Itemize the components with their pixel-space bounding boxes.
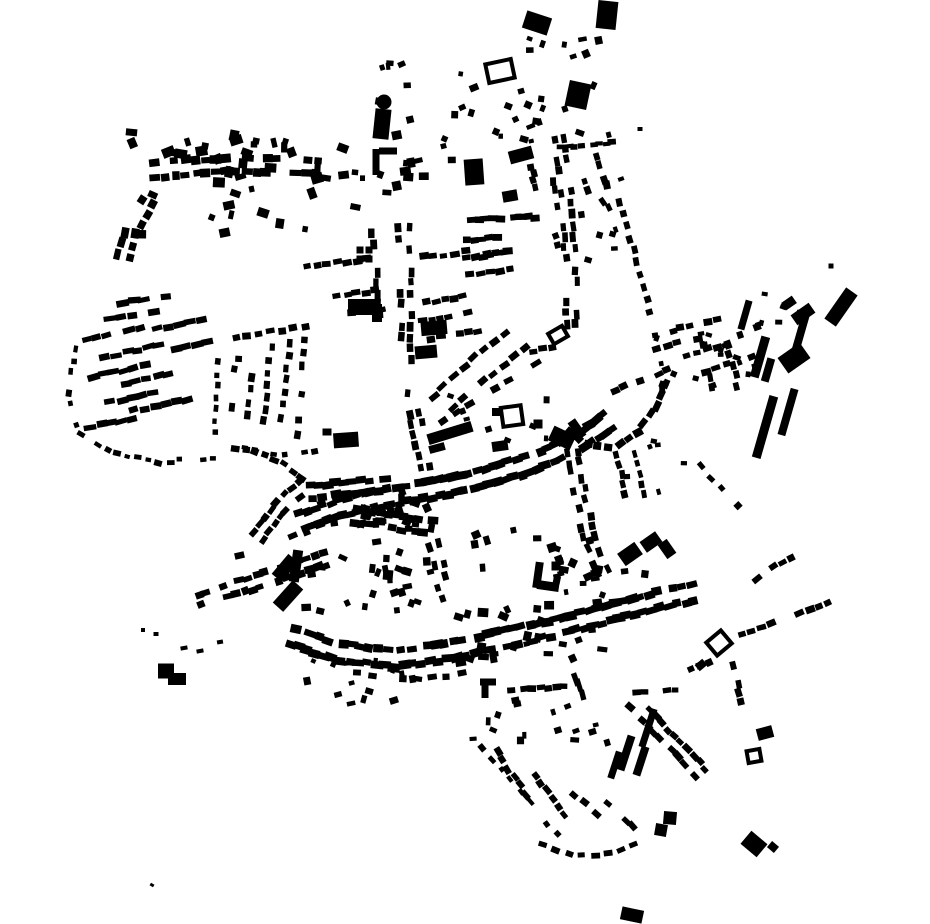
building-footprint — [510, 527, 517, 534]
building-footprint — [264, 163, 276, 173]
building-footprint — [244, 410, 251, 419]
building-footprint — [417, 528, 428, 537]
building-footprint — [369, 564, 376, 574]
building-footprint — [230, 445, 239, 452]
building-footprint — [439, 639, 449, 649]
building-footprint — [330, 520, 338, 527]
building-footprint — [275, 218, 285, 229]
building-footprint — [280, 400, 286, 407]
building-footprint — [478, 653, 489, 660]
map-background — [0, 0, 930, 924]
building-footprint — [353, 669, 361, 675]
building-footprint — [262, 405, 269, 414]
building-footprint — [190, 155, 200, 165]
building-footprint — [265, 370, 271, 377]
building-footprint — [554, 202, 560, 210]
building-footprint — [458, 71, 463, 76]
building-footprint — [397, 289, 404, 298]
building-footprint — [568, 199, 574, 207]
building-footprint — [366, 308, 376, 314]
building-footprint — [507, 687, 515, 693]
building-footprint — [394, 223, 401, 232]
building-footprint — [352, 169, 359, 175]
building-footprint — [544, 651, 553, 656]
building-footprint — [229, 403, 236, 412]
building-footprint — [295, 416, 302, 423]
building-footprint — [451, 111, 458, 119]
building-footprint — [317, 493, 327, 501]
building-footprint — [676, 323, 685, 331]
building-footprint — [333, 432, 359, 449]
building-footprint — [346, 478, 357, 485]
building-footprint — [557, 145, 566, 150]
building-footprint — [395, 235, 402, 243]
building-footprint — [154, 632, 159, 636]
building-footprint — [496, 215, 506, 222]
building-footprint — [213, 405, 218, 412]
building-footprint — [595, 141, 603, 145]
building-footprint — [360, 175, 365, 181]
building-footprint — [403, 82, 411, 88]
building-footprint — [134, 454, 142, 460]
building-footprint — [248, 385, 253, 392]
building-footprint — [442, 673, 449, 680]
building-footprint — [370, 286, 379, 293]
building-footprint — [365, 478, 374, 485]
building-footprint — [373, 487, 383, 495]
building-footprint — [530, 215, 540, 222]
building-footprint — [745, 371, 750, 377]
building-footprint — [134, 230, 146, 239]
building-footprint — [456, 330, 464, 337]
building-footprint — [382, 189, 391, 195]
building-footprint — [480, 564, 486, 572]
building-footprint — [476, 642, 486, 653]
building-footprint — [409, 675, 417, 684]
building-footprint — [550, 177, 556, 186]
building-footprint — [68, 368, 73, 375]
building-footprint — [322, 261, 331, 268]
building-footprint — [575, 448, 582, 457]
building-footprint — [313, 262, 321, 269]
building-footprint — [368, 228, 375, 238]
building-footprint — [578, 211, 585, 218]
building-footprint — [638, 127, 643, 131]
building-footprint — [409, 311, 416, 319]
building-footprint — [414, 345, 437, 360]
building-footprint — [195, 145, 208, 157]
building-footprint — [406, 245, 412, 254]
building-footprint — [399, 670, 405, 677]
building-footprint — [562, 308, 569, 315]
building-footprint — [141, 628, 145, 632]
building-footprint — [566, 460, 572, 468]
building-footprint — [405, 526, 413, 532]
building-footprint — [298, 391, 305, 398]
building-footprint — [592, 598, 602, 607]
building-footprint — [383, 646, 394, 653]
building-footprint — [588, 624, 596, 633]
building-footprint — [168, 673, 186, 685]
building-footprint — [200, 457, 207, 462]
building-footprint — [373, 149, 380, 175]
building-footprint — [580, 581, 587, 586]
building-footprint — [624, 474, 630, 479]
building-footprint — [263, 154, 273, 162]
building-footprint — [594, 36, 603, 45]
building-footprint — [323, 429, 332, 436]
building-footprint — [428, 317, 436, 324]
building-footprint — [448, 157, 456, 164]
building-footprint — [311, 522, 321, 528]
building-footprint — [544, 685, 553, 692]
building-footprint — [307, 571, 316, 578]
building-footprint — [621, 568, 629, 575]
building-footprint — [436, 333, 446, 340]
building-footprint — [486, 717, 491, 725]
building-footprint — [459, 486, 468, 495]
building-footprint — [399, 323, 405, 331]
building-footprint — [572, 244, 578, 252]
building-footprint — [282, 452, 288, 458]
building-footprint — [498, 134, 503, 139]
building-footprint — [170, 157, 178, 164]
building-footprint — [397, 298, 404, 307]
building-footprint — [270, 343, 275, 350]
building-footprint — [373, 517, 383, 525]
building-footprint — [289, 170, 301, 177]
building-footprint — [145, 457, 151, 462]
building-footprint — [591, 853, 600, 859]
building-footprint — [506, 265, 514, 272]
map-figure — [0, 0, 930, 924]
building-footprint — [300, 349, 307, 357]
building-footprint — [408, 355, 414, 364]
building-footprint — [238, 158, 248, 169]
building-footprint — [406, 157, 415, 168]
building-footprint — [394, 607, 400, 614]
building-footprint — [398, 332, 405, 342]
building-footprint — [461, 247, 471, 255]
building-footprint — [603, 850, 612, 857]
building-footprint — [316, 564, 326, 570]
building-footprint — [419, 252, 429, 260]
building-footprint — [308, 495, 316, 502]
building-footprint — [638, 480, 645, 488]
building-footprint — [611, 246, 618, 251]
building-footprint — [449, 295, 459, 303]
building-footprint — [398, 493, 405, 501]
building-footprint — [560, 683, 567, 689]
building-footprint — [632, 689, 641, 695]
building-footprint — [396, 646, 405, 654]
building-footprint — [418, 317, 428, 323]
building-footprint — [551, 136, 558, 144]
building-footprint — [545, 633, 556, 642]
building-footprint — [609, 598, 619, 604]
building-footprint — [361, 290, 371, 297]
building-footprint — [718, 353, 724, 357]
building-footprint — [563, 298, 569, 306]
building-footprint — [484, 234, 493, 241]
building-footprint — [272, 155, 280, 162]
building-footprint — [373, 658, 378, 665]
building-footprint — [212, 418, 217, 424]
building-footprint — [65, 389, 72, 397]
building-footprint — [578, 852, 585, 857]
building-footprint — [177, 457, 182, 462]
building-footprint — [387, 575, 393, 583]
building-footprint — [149, 158, 160, 167]
building-footprint — [672, 598, 682, 607]
building-footprint — [553, 574, 559, 580]
building-footprint — [469, 737, 476, 742]
building-footprint — [415, 660, 426, 669]
building-footprint — [303, 676, 311, 685]
building-footprint — [489, 651, 499, 657]
building-footprint — [662, 687, 671, 693]
building-footprint — [560, 223, 566, 231]
building-footprint — [532, 117, 539, 125]
building-footprint — [357, 247, 364, 254]
building-footprint — [347, 309, 356, 316]
building-footprint — [533, 535, 541, 541]
building-footprint — [578, 143, 585, 149]
building-footprint — [370, 239, 377, 249]
building-footprint — [485, 269, 495, 275]
building-footprint — [127, 312, 137, 320]
building-footprint — [405, 389, 411, 397]
building-footprint — [213, 177, 225, 188]
building-footprint — [368, 672, 377, 679]
building-footprint — [180, 172, 190, 179]
building-footprint — [344, 660, 351, 666]
building-footprint — [640, 689, 648, 694]
building-footprint — [363, 643, 374, 653]
building-footprint — [412, 522, 420, 528]
building-footprint — [299, 362, 304, 371]
building-footprint — [387, 523, 397, 531]
building-footprint — [423, 557, 431, 566]
building-footprint — [587, 512, 595, 521]
building-footprint — [302, 226, 308, 233]
building-footprint — [538, 95, 545, 102]
building-footprint — [533, 605, 541, 613]
building-footprint — [265, 357, 272, 364]
building-footprint — [215, 382, 221, 389]
building-footprint — [582, 484, 588, 492]
building-footprint — [372, 108, 391, 140]
building-footprint — [213, 429, 219, 434]
building-footprint — [407, 343, 414, 352]
building-footprint — [408, 278, 414, 285]
building-footprint — [555, 166, 563, 175]
building-footprint — [529, 349, 538, 355]
building-footprint — [379, 148, 397, 155]
building-footprint — [248, 373, 256, 383]
building-footprint — [501, 405, 523, 427]
building-footprint — [391, 180, 402, 191]
building-footprint — [571, 319, 578, 328]
building-footprint — [132, 347, 143, 354]
building-footprint — [596, 0, 619, 30]
building-footprint — [761, 292, 767, 297]
building-footprint — [568, 209, 575, 219]
building-footprint — [485, 59, 514, 83]
building-footprint — [564, 320, 570, 330]
building-footprint — [403, 172, 414, 181]
building-footprint — [407, 322, 414, 332]
building-footprint — [278, 327, 286, 335]
building-footprint — [407, 290, 414, 298]
building-footprint — [419, 418, 426, 426]
building-footprint — [544, 601, 554, 610]
building-footprint — [462, 254, 471, 261]
building-footprint — [346, 490, 358, 497]
building-footprint — [407, 223, 413, 232]
building-footprint — [681, 461, 687, 465]
building-footprint — [235, 356, 242, 362]
building-footprint — [538, 345, 547, 352]
building-footprint — [604, 443, 613, 451]
building-footprint — [492, 408, 500, 416]
building-footprint — [294, 430, 302, 439]
building-footprint — [440, 253, 448, 259]
building-footprint — [303, 156, 312, 164]
building-footprint-map — [0, 0, 930, 924]
building-footprint — [663, 811, 677, 825]
building-footprint — [314, 162, 321, 171]
building-footprint — [672, 687, 678, 692]
building-footprint — [231, 365, 238, 373]
building-footprint — [641, 570, 649, 578]
building-footprint — [263, 381, 270, 389]
building-footprint — [588, 521, 596, 530]
building-footprint — [282, 388, 289, 396]
building-footprint — [654, 823, 668, 837]
building-footprint — [214, 395, 219, 402]
building-footprint — [465, 271, 474, 278]
building-footprint — [167, 460, 175, 465]
building-footprint — [419, 172, 429, 180]
building-footprint — [552, 185, 558, 194]
building-footprint — [215, 358, 221, 365]
building-footprint — [301, 604, 311, 612]
building-footprint — [522, 732, 526, 739]
building-footprint — [775, 320, 782, 325]
building-footprint — [245, 399, 251, 407]
building-footprint — [552, 683, 561, 690]
building-footprint — [652, 332, 659, 338]
building-footprint — [373, 644, 383, 653]
building-footprint — [470, 540, 478, 549]
building-footprint — [575, 277, 580, 286]
building-footprint — [482, 682, 489, 698]
building-footprint — [160, 293, 171, 300]
building-footprint — [362, 603, 368, 610]
building-footprint — [464, 158, 485, 185]
building-footprint — [572, 267, 579, 276]
building-footprint — [285, 352, 293, 360]
building-footprint — [441, 296, 449, 303]
building-footprint — [569, 232, 576, 242]
building-footprint — [607, 139, 616, 145]
building-footprint — [383, 555, 390, 562]
building-footprint — [593, 441, 602, 450]
building-footprint — [544, 435, 548, 441]
building-footprint — [747, 749, 762, 763]
building-footprint — [407, 334, 414, 343]
building-footprint — [242, 446, 250, 453]
building-footprint — [172, 171, 180, 180]
building-footprint — [658, 361, 663, 367]
building-footprint — [492, 234, 502, 241]
building-footprint — [210, 456, 216, 461]
building-footprint — [264, 392, 271, 401]
building-footprint — [126, 128, 138, 136]
building-footprint — [477, 608, 488, 617]
building-footprint — [526, 47, 534, 53]
building-footprint — [829, 264, 834, 269]
building-footprint — [260, 416, 268, 425]
building-footprint — [570, 737, 579, 743]
building-footprint — [161, 173, 170, 182]
building-footprint — [214, 373, 219, 378]
building-footprint — [379, 475, 391, 483]
building-footprint — [375, 268, 381, 278]
building-footprint — [428, 253, 437, 259]
building-footprint — [426, 336, 435, 344]
building-footprint — [561, 243, 566, 251]
building-footprint — [283, 364, 289, 372]
building-footprint — [463, 236, 471, 243]
building-footprint — [201, 157, 210, 164]
building-footprint — [301, 336, 308, 343]
building-footprint — [570, 144, 577, 150]
building-footprint — [382, 484, 392, 494]
building-footprint — [563, 254, 571, 262]
building-footprint — [242, 332, 251, 339]
building-footprint — [668, 584, 677, 592]
building-footprint — [409, 268, 415, 278]
building-footprint — [578, 474, 585, 484]
building-footprint — [301, 323, 310, 331]
building-footprint — [574, 310, 580, 320]
building-footprint — [338, 171, 349, 180]
building-footprint — [703, 318, 713, 326]
building-footprint — [544, 396, 550, 403]
building-footprint — [200, 168, 211, 177]
building-footprint — [386, 60, 394, 66]
building-footprint — [71, 358, 77, 364]
building-footprint — [377, 506, 385, 515]
building-footprint — [562, 232, 568, 242]
building-footprint — [527, 685, 536, 692]
building-footprint — [464, 328, 473, 335]
building-footprint — [149, 174, 160, 182]
building-footprint — [287, 339, 293, 348]
building-footprint — [361, 255, 371, 262]
building-footprint — [561, 41, 567, 48]
building-footprint — [426, 462, 434, 471]
